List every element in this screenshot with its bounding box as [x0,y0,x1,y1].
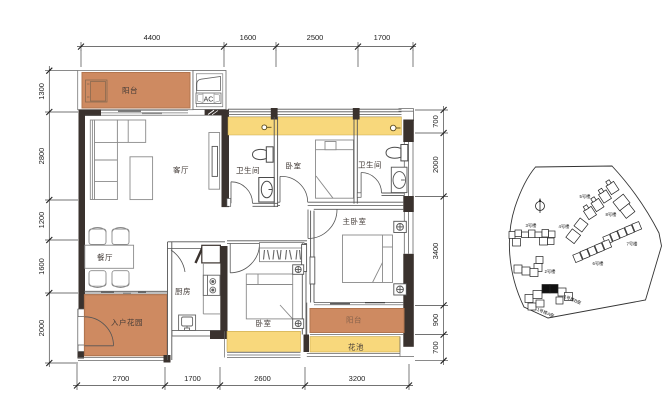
svg-text:8号楼: 8号楼 [606,211,618,218]
svg-text:1700: 1700 [184,374,201,383]
svg-text:2号楼: 2号楼 [545,268,557,275]
svg-text:4400: 4400 [144,33,161,42]
svg-text:700: 700 [431,115,440,128]
svg-text:6号楼: 6号楼 [593,260,605,267]
svg-text:卧室: 卧室 [256,318,272,328]
svg-text:2800: 2800 [37,148,46,165]
svg-text:2700: 2700 [113,374,130,383]
svg-text:3200: 3200 [349,374,366,383]
svg-text:1300: 1300 [37,83,46,100]
svg-text:2000: 2000 [37,320,46,337]
svg-text:2000: 2000 [431,156,440,173]
svg-text:阳台: 阳台 [346,315,362,325]
svg-text:3400: 3400 [431,243,440,260]
svg-text:卧室: 卧室 [286,161,302,171]
svg-text:2500: 2500 [307,33,324,42]
svg-text:入户花园: 入户花园 [111,317,143,327]
svg-text:1700: 1700 [374,33,391,42]
svg-text:4号楼: 4号楼 [559,223,571,230]
svg-text:厨房: 厨房 [175,286,191,296]
svg-text:卫生间: 卫生间 [236,165,260,175]
svg-text:1200: 1200 [37,212,46,229]
svg-text:卫生间: 卫生间 [358,160,382,170]
svg-text:主卧室: 主卧室 [343,216,367,226]
svg-text:7号楼: 7号楼 [627,241,639,248]
svg-text:阳台: 阳台 [122,85,138,95]
svg-text:5号楼: 5号楼 [580,193,592,200]
svg-text:客厅: 客厅 [173,165,189,175]
svg-text:AC: AC [204,96,214,103]
svg-text:700: 700 [431,341,440,354]
svg-text:1600: 1600 [37,258,46,275]
svg-text:2600: 2600 [254,374,271,383]
svg-text:900: 900 [431,314,440,327]
svg-text:餐厅: 餐厅 [97,253,113,262]
svg-text:花池: 花池 [348,342,364,352]
svg-text:3号楼: 3号楼 [526,222,538,229]
svg-text:1600: 1600 [240,33,257,42]
